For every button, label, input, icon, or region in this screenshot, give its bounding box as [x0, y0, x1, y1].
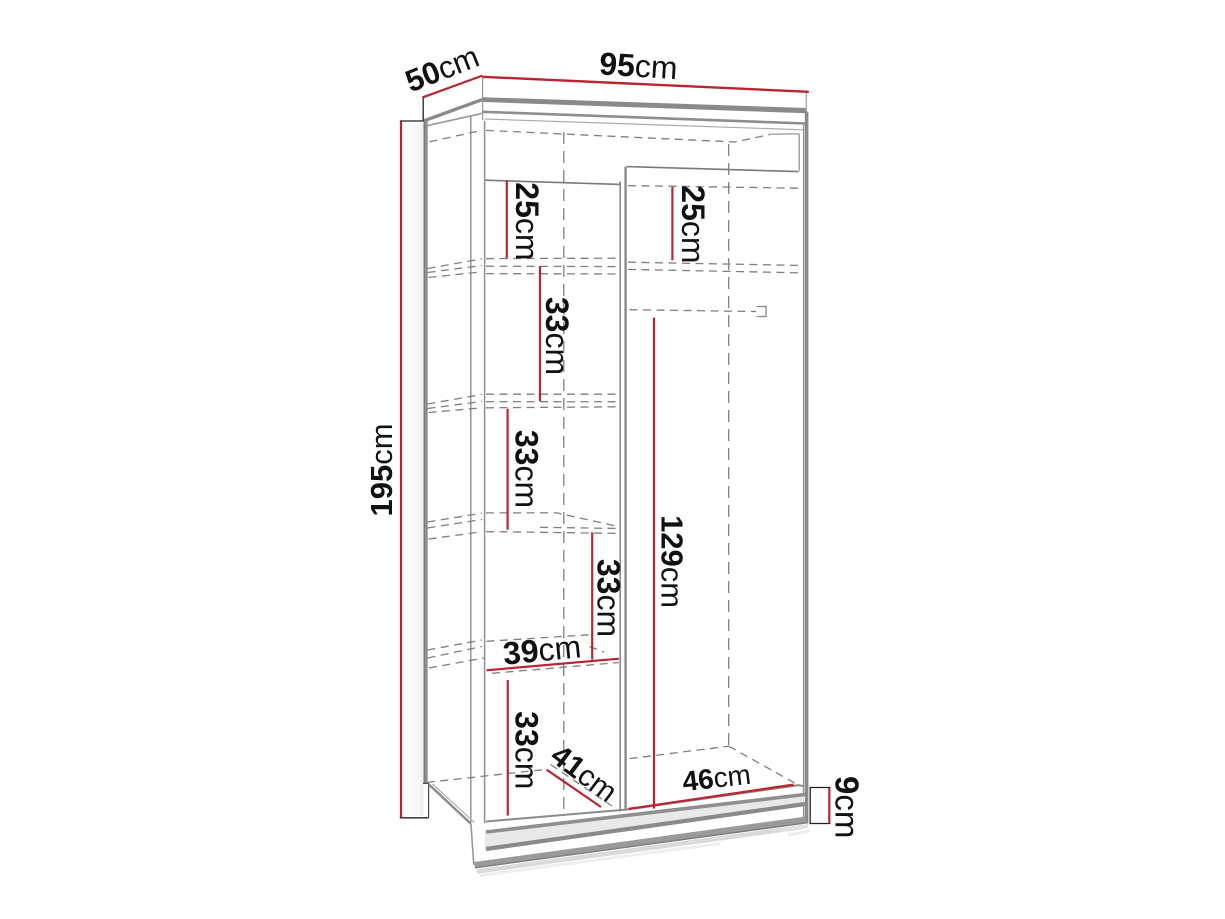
svg-text:33cm: 33cm: [539, 297, 575, 375]
svg-text:195cm: 195cm: [364, 423, 399, 516]
svg-text:25cm: 25cm: [675, 185, 711, 263]
svg-text:33cm: 33cm: [590, 559, 626, 637]
svg-text:33cm: 33cm: [508, 430, 544, 508]
svg-text:9cm: 9cm: [829, 776, 866, 838]
svg-text:25cm: 25cm: [509, 182, 545, 260]
svg-text:33cm: 33cm: [508, 711, 544, 789]
svg-text:39cm: 39cm: [501, 628, 582, 671]
svg-text:95cm: 95cm: [598, 45, 678, 86]
svg-text:129cm: 129cm: [655, 515, 690, 608]
